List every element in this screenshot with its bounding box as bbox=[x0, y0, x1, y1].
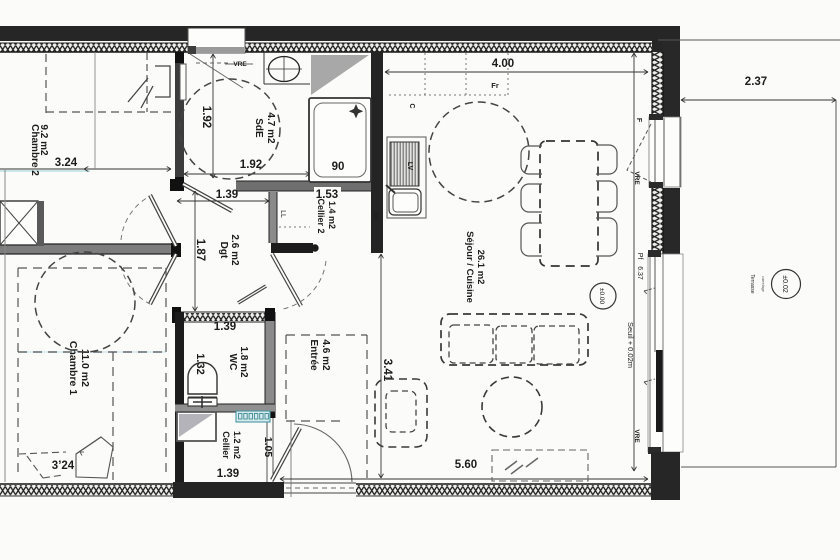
svg-text:SdE: SdE bbox=[253, 118, 264, 138]
svg-text:Terrasse: Terrasse bbox=[749, 274, 755, 293]
svg-text:Séjour / Cuisine: Séjour / Cuisine bbox=[464, 231, 475, 303]
svg-text:6.37: 6.37 bbox=[636, 266, 643, 280]
svg-text:Entrée: Entrée bbox=[308, 339, 319, 371]
svg-text:26.1 m2: 26.1 m2 bbox=[475, 250, 486, 285]
svg-text:C: C bbox=[408, 103, 415, 108]
svg-text:50: 50 bbox=[372, 213, 378, 220]
svg-text:Cellier: Cellier bbox=[221, 431, 231, 459]
svg-text:2.6 m2: 2.6 m2 bbox=[229, 234, 240, 266]
svg-text:1.8 m2: 1.8 m2 bbox=[238, 346, 249, 378]
svg-text:1.32: 1.32 bbox=[194, 353, 206, 374]
svg-text:90: 90 bbox=[332, 161, 345, 173]
svg-text:VRE: VRE bbox=[633, 429, 640, 443]
svg-text:1.39: 1.39 bbox=[214, 321, 236, 333]
svg-text:1.39: 1.39 bbox=[217, 468, 239, 480]
svg-text:9.2 m2: 9.2 m2 bbox=[38, 124, 49, 156]
svg-text:1.92: 1.92 bbox=[240, 159, 262, 171]
svg-text:WC: WC bbox=[227, 354, 238, 371]
svg-text:LL: LL bbox=[279, 210, 286, 218]
svg-text:1.92: 1.92 bbox=[200, 106, 212, 128]
svg-text:VRE: VRE bbox=[233, 61, 247, 68]
svg-text:1.39: 1.39 bbox=[216, 189, 238, 201]
svg-text:±0.02: ±0.02 bbox=[781, 275, 788, 293]
svg-text:4.6 m2: 4.6 m2 bbox=[320, 339, 331, 371]
svg-text:1.2 m2: 1.2 m2 bbox=[232, 431, 242, 459]
svg-text:1.87: 1.87 bbox=[194, 239, 206, 261]
svg-text:carrelage: carrelage bbox=[761, 276, 765, 292]
svg-text:11.0 m2: 11.0 m2 bbox=[79, 349, 91, 387]
svg-text:LV: LV bbox=[406, 162, 413, 171]
svg-text:Cellier 2: Cellier 2 bbox=[316, 198, 326, 233]
svg-text:4.00: 4.00 bbox=[492, 58, 514, 70]
svg-text:F: F bbox=[635, 118, 642, 123]
svg-text:5.60: 5.60 bbox=[455, 459, 477, 471]
svg-text:Fr: Fr bbox=[491, 81, 499, 90]
svg-text:Dgt: Dgt bbox=[218, 242, 229, 259]
svg-text:4.7 m2: 4.7 m2 bbox=[265, 112, 276, 144]
svg-text:1.4 m2: 1.4 m2 bbox=[327, 201, 337, 229]
svg-text:Seuil + 0.02m: Seuil + 0.02m bbox=[626, 322, 635, 368]
svg-text:2.37: 2.37 bbox=[745, 76, 767, 88]
svg-text:1.05: 1.05 bbox=[262, 437, 274, 458]
svg-text:3’24: 3’24 bbox=[52, 460, 75, 472]
svg-text:Pf: Pf bbox=[636, 253, 643, 260]
svg-text:3.24: 3.24 bbox=[55, 157, 78, 169]
svg-text:±0.00: ±0.00 bbox=[598, 288, 605, 305]
